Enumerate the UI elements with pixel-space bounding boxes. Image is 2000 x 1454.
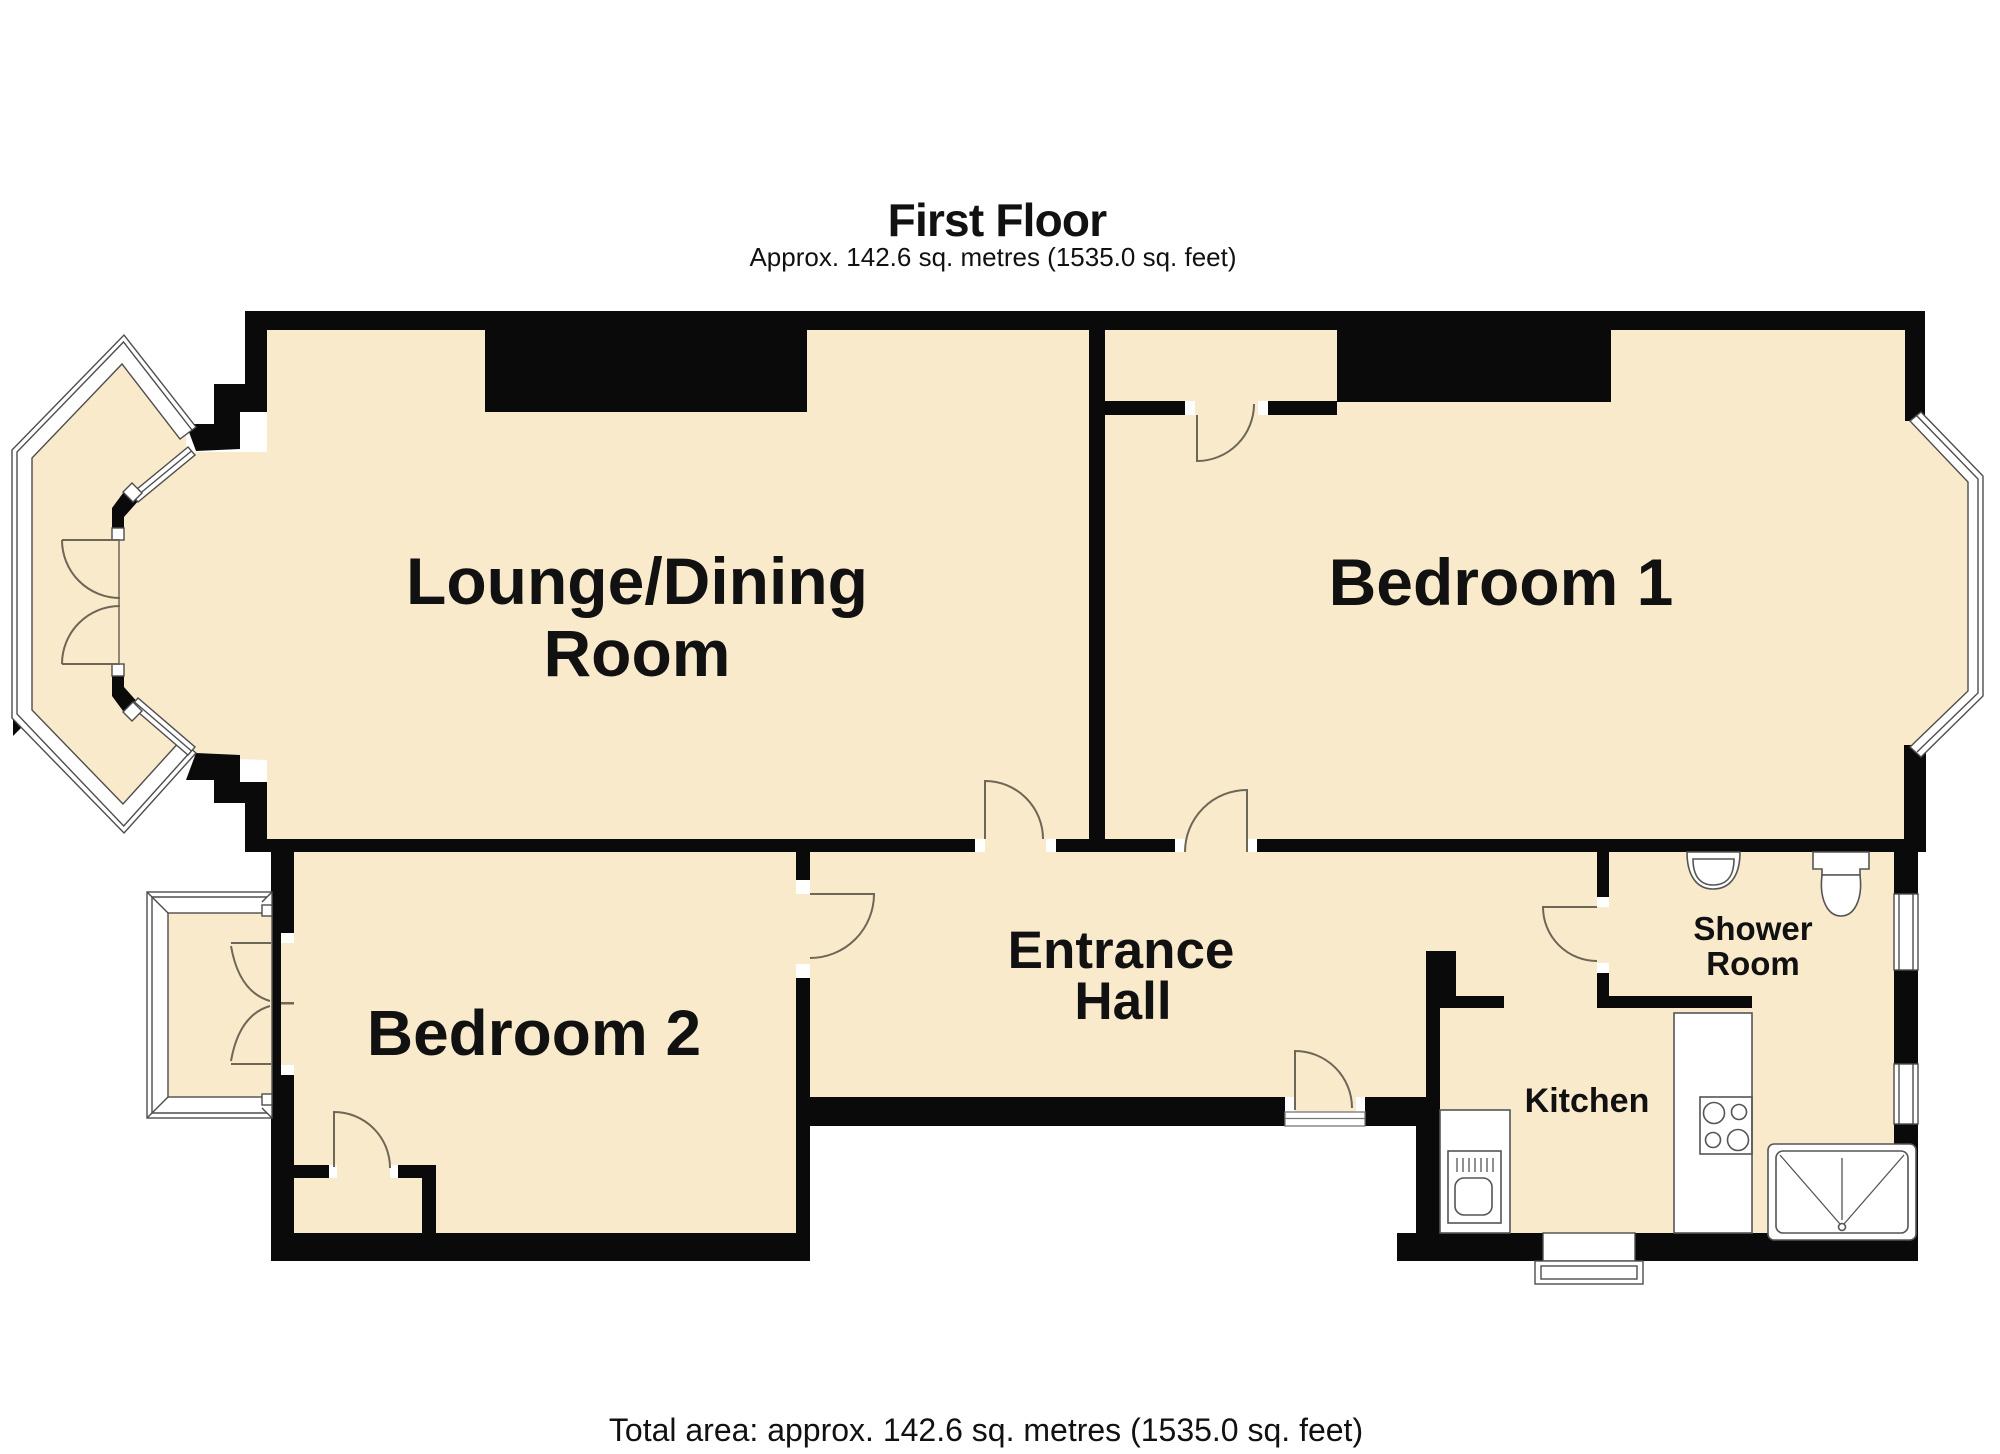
svg-text:Room: Room xyxy=(1706,945,1800,982)
svg-text:First Floor: First Floor xyxy=(888,194,1108,246)
svg-text:Approx. 142.6 sq. metres (1535: Approx. 142.6 sq. metres (1535.0 sq. fee… xyxy=(749,242,1236,272)
svg-text:Room: Room xyxy=(544,616,731,690)
svg-text:Shower: Shower xyxy=(1693,910,1812,947)
svg-text:Bedroom 2: Bedroom 2 xyxy=(367,997,701,1069)
svg-text:Lounge/Dining: Lounge/Dining xyxy=(406,544,868,618)
svg-text:Bedroom 1: Bedroom 1 xyxy=(1329,545,1674,619)
svg-text:Total area: approx. 142.6 sq.: Total area: approx. 142.6 sq. metres (15… xyxy=(609,1412,1363,1448)
svg-text:Hall: Hall xyxy=(1074,972,1171,1031)
svg-text:Kitchen: Kitchen xyxy=(1525,1082,1650,1120)
